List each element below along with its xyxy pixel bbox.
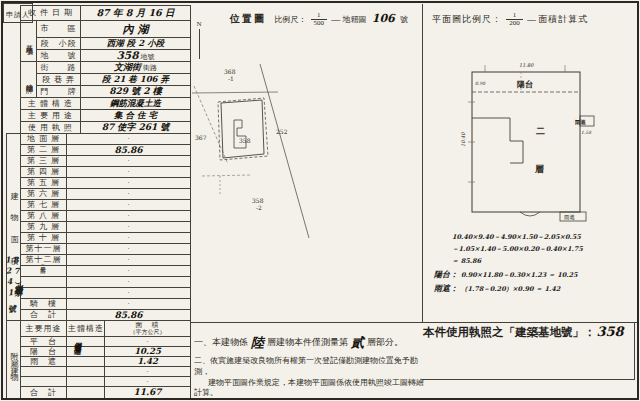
annex-row-value: 1.42 bbox=[105, 357, 191, 367]
note-1-hand-floors: 陸 bbox=[251, 335, 264, 350]
floor-row-value: 85.86 bbox=[67, 145, 191, 156]
lane-value: 段 21 巷 106 弄 bbox=[81, 74, 191, 86]
received-date-label: 收 件 日 期 bbox=[21, 6, 81, 21]
annex-total-label: 合 計 bbox=[21, 387, 67, 399]
road-line-right bbox=[260, 64, 309, 238]
note-1-text-b: 層建物本件僅測量第 bbox=[267, 337, 348, 347]
address-group-cell: 建物門牌 bbox=[21, 62, 37, 98]
floor-char-2: 層 bbox=[534, 164, 544, 174]
note-2: 二、依實施建築改良物所有權第一次登記僅勘測建物位置免予勘測， 建物平面圖作業規定… bbox=[194, 356, 424, 399]
calc-canopy-label: 雨遮： bbox=[434, 283, 458, 293]
notes-block: 一、本建物係陸層建物本件僅測量第貳層部分。 二、依實施建築改良物所有權第一次登記… bbox=[194, 334, 424, 401]
north-label: N bbox=[196, 20, 201, 28]
floor-char-1: 二 bbox=[536, 126, 545, 136]
calc-canopy-expr: （1.78－0.20）×0.90 ＝ 1.42 bbox=[461, 285, 560, 293]
annex-vertical-cell: 附屬建物 bbox=[7, 321, 21, 399]
usage-label: 主 要 用 途 bbox=[21, 110, 81, 122]
site-group-label: 基地地號 bbox=[25, 39, 32, 43]
bottom-bay-arc bbox=[520, 212, 540, 216]
plan-dash: — bbox=[527, 14, 536, 24]
license-site-note: 本件使用執照之「建築基地號」：358 bbox=[423, 324, 635, 340]
location-scale-label: 比例尺： bbox=[274, 15, 306, 24]
usage-value: 集 合 住 宅 bbox=[81, 110, 191, 122]
annex-table: 附屬建物 主要用途 主體構造 面 積 （平方公尺） 平 台· 陽 台10.25 … bbox=[6, 320, 191, 399]
annex-structure-vertical: 鋼筋混凝土造 bbox=[74, 337, 81, 385]
annex-row-label: 陽 台 bbox=[21, 347, 67, 357]
floor-row-label: 第 八 層 bbox=[21, 211, 67, 222]
door-label: 門 牌 bbox=[37, 86, 81, 98]
annex-col-area-line2: （平方公尺） bbox=[106, 329, 189, 335]
floor-row-value: · bbox=[67, 200, 191, 211]
lot-value: 358 bbox=[117, 50, 139, 62]
door-value: 829 號 2 樓 bbox=[81, 86, 191, 98]
area-calc-title: 面積計算式 bbox=[538, 14, 588, 24]
floor-area-table: 建物面積 地 面 層 · 第 二 層85.86 第 三 層· 第 四 層· 第 … bbox=[6, 133, 191, 321]
floor-row-value: · bbox=[67, 134, 191, 145]
annex-total-value: 11.67 bbox=[105, 387, 191, 399]
balcony-label: 陽台 bbox=[517, 79, 533, 89]
structure-label: 主 體 構 造 bbox=[21, 98, 81, 110]
floor-row-value: · bbox=[67, 288, 191, 299]
location-map-header: 位置圖 比例尺： 1 500 — 地籍圖 106 號 bbox=[230, 12, 408, 28]
floor-row-value: · bbox=[67, 277, 191, 288]
annex-row-label bbox=[21, 367, 67, 377]
annex-vertical-label: 附屬建物 bbox=[10, 344, 18, 374]
lot-label: 地 號 bbox=[37, 50, 81, 62]
license-note-number: 358 bbox=[597, 324, 624, 339]
parcel-368-label: 368 bbox=[224, 68, 236, 75]
floor-row-label: 第 三 層 bbox=[21, 156, 67, 167]
parcel-358-2-label: 358 bbox=[252, 197, 264, 204]
plan-outline bbox=[472, 72, 580, 212]
section-value: 西湖 段 2 小段 bbox=[81, 38, 191, 50]
annex-row-value: · bbox=[105, 337, 191, 347]
annex-structure-cell bbox=[67, 377, 105, 387]
cadastral-sheet-label: 地籍圖 bbox=[343, 15, 367, 24]
annex-structure-cell bbox=[67, 367, 105, 377]
plan-scale-label: 平面圖比例尺： bbox=[432, 14, 502, 24]
calc-line: 10.40×9.40－4.90×1.50－2.05×0.55 bbox=[434, 233, 634, 242]
site-map: 368 -1 367 252 358 358 -2 bbox=[190, 52, 422, 302]
annex-col-structure: 主體構造 bbox=[67, 321, 105, 337]
floor-row-label: 地 面 層 bbox=[21, 134, 67, 145]
location-scale-fraction: 1 500 bbox=[311, 12, 328, 28]
scanned-survey-form: 申請人 收 件 日 期 87 年 8 月 16 日 基地地號 市 區 內 湖 段… bbox=[0, 0, 640, 401]
plan-scale-denominator: 200 bbox=[506, 20, 523, 27]
floor-row-value: · bbox=[67, 156, 191, 167]
note-1-no: 一、 bbox=[194, 337, 212, 347]
floor-row-value: · bbox=[67, 266, 191, 277]
building-footprint-outline bbox=[221, 100, 264, 158]
floor-plan: 陽台 二 層 雨遮 雨遮 11.80 10.40 0.90 1.58 bbox=[425, 52, 638, 230]
street-label: 街 路 bbox=[37, 62, 81, 74]
floor-row-value: · bbox=[67, 222, 191, 233]
lot-cell: 358 地號 bbox=[81, 50, 191, 62]
annex-col-usage: 主要用途 bbox=[21, 321, 67, 337]
license-value: 87 使字 261 號 bbox=[81, 122, 191, 134]
parcel-358-2-sub: -2 bbox=[256, 204, 262, 211]
calc-balcony-expr: 0.90×11.80－0.30×1.23 ＝ 10.25 bbox=[461, 271, 578, 279]
calc-line: －1.05×1.40－5.00×0.20－0.40×1.75 bbox=[434, 245, 634, 254]
floor-total-label: 合 計 bbox=[21, 310, 67, 321]
annex-row-label bbox=[21, 377, 67, 387]
annex-row-label: 雨 遮 bbox=[21, 357, 67, 367]
annex-col-area-line1: 面 積 bbox=[106, 322, 189, 329]
dim-balcony-label: 0.90 bbox=[475, 81, 486, 86]
parcel-line-bottom bbox=[202, 175, 252, 176]
annex-row-label: 平 台 bbox=[21, 337, 67, 347]
annex-structure-cell bbox=[67, 347, 105, 357]
calc-line-balcony: 陽台：0.90×11.80－0.30×1.23 ＝ 10.25 bbox=[434, 269, 634, 280]
floor-row-value: · bbox=[67, 211, 191, 222]
identification-table: 收 件 日 期 87 年 8 月 16 日 基地地號 市 區 內 湖 段 小段 … bbox=[20, 5, 191, 134]
street-suffix: 街路 bbox=[143, 64, 157, 72]
plan-scale-fraction: 1 200 bbox=[506, 12, 523, 28]
note-2-no: 二、 bbox=[194, 356, 210, 365]
location-dash: — bbox=[331, 14, 340, 24]
parcel-boundary bbox=[218, 98, 268, 160]
road-line-top bbox=[192, 92, 278, 93]
received-date-value: 87 年 8 月 16 日 bbox=[81, 6, 191, 21]
floor-row-label: 第 九 層 bbox=[21, 222, 67, 233]
structure-value: 鋼筋混凝土造 bbox=[81, 98, 191, 110]
note-1-text-c: 層部分。 bbox=[367, 337, 403, 347]
floor-row-label: 第十一層 bbox=[21, 244, 67, 255]
annex-row-value: · bbox=[105, 367, 191, 377]
floor-row-label: 第 二 層 bbox=[21, 145, 67, 156]
floor-row-label: 第 四 層 bbox=[21, 167, 67, 178]
note-1: 一、本建物係陸層建物本件僅測量第貳層部分。 bbox=[194, 334, 424, 352]
annex-row-value: · bbox=[105, 377, 191, 387]
annex-structure-cell bbox=[67, 387, 105, 399]
parcel-252-label: 252 bbox=[276, 128, 288, 135]
floor-row-value: · bbox=[67, 299, 191, 310]
calc-line-canopy: 雨遮：（1.78－0.20）×0.90 ＝ 1.42 bbox=[434, 283, 634, 294]
site-group-cell: 基地地號 bbox=[21, 21, 37, 62]
street-value: 文湖街 bbox=[114, 62, 141, 72]
city-value: 內 湖 bbox=[81, 21, 191, 38]
street-cell: 文湖街 街路 bbox=[81, 62, 191, 74]
parcel-367-label: 367 bbox=[195, 134, 207, 141]
canopy-bottom-label: 雨遮 bbox=[564, 214, 576, 220]
canopy-right-label: 雨遮 bbox=[574, 119, 587, 126]
calc-balcony-label: 陽台： bbox=[434, 269, 458, 279]
plan-left-notch bbox=[472, 118, 523, 163]
note-1-hand-measured: 貳 bbox=[351, 335, 364, 350]
floor-row-value: · bbox=[67, 244, 191, 255]
floor-row-value: · bbox=[67, 189, 191, 200]
floor-row-label: 第 五 層 bbox=[21, 178, 67, 189]
location-scale-denominator: 500 bbox=[311, 20, 328, 27]
cadastral-sheet-suffix: 號 bbox=[400, 15, 408, 24]
lot-suffix: 地號 bbox=[140, 53, 154, 61]
note-2-line1: 依實施建築改良物所有權第一次登記僅勘測建物位置免予勘測， bbox=[194, 356, 418, 376]
annex-structure-cell bbox=[67, 357, 105, 367]
section-label: 段 小段 bbox=[37, 38, 81, 50]
address-group-label: 建物門牌 bbox=[25, 78, 32, 82]
note-2-line2: 建物平面圖作業規定，本建物平面圖係依使用執照竣工圖轉繪計算。 bbox=[194, 378, 424, 398]
floor-row-label: 第 六 層 bbox=[21, 189, 67, 200]
floor-row-value: · bbox=[67, 255, 191, 266]
city-label: 市 區 bbox=[37, 21, 81, 38]
floor-total-value: 85.86 bbox=[67, 310, 191, 321]
floor-row-label: 第 十 層 bbox=[21, 233, 67, 244]
cadastral-sheet-no: 106 bbox=[372, 12, 395, 25]
license-note-prefix: 本件使用執照之「建築基地號」： bbox=[423, 326, 596, 338]
annex-col-area: 面 積 （平方公尺） bbox=[105, 321, 191, 337]
floor-row-value: · bbox=[67, 233, 191, 244]
dim-canopy-label: 1.58 bbox=[581, 130, 592, 135]
floor-row-value: · bbox=[67, 167, 191, 178]
middle-right-divider bbox=[422, 4, 423, 322]
dim-top-label: 11.80 bbox=[519, 62, 534, 68]
floor-row-value: · bbox=[67, 178, 191, 189]
location-map-title: 位置圖 bbox=[230, 13, 266, 24]
note-1-text-a: 本建物係 bbox=[212, 337, 248, 347]
lane-label: 段 巷 弄 bbox=[37, 74, 81, 86]
dim-left-label: 10.40 bbox=[460, 132, 466, 147]
license-label: 使 用 執 照 bbox=[21, 122, 81, 134]
calc-line: ＝ 85.86 bbox=[434, 257, 634, 266]
parcel-358-label: 358 bbox=[239, 137, 251, 144]
floor-area-unit-label: （平方公尺） bbox=[40, 262, 46, 304]
floor-row-label: 第 七 層 bbox=[21, 200, 67, 211]
floor-plan-header: 平面圖比例尺： 1 200 — 面積計算式 bbox=[432, 12, 588, 28]
area-calculations: 10.40×9.40－4.90×1.50－2.05×0.55 －1.05×1.4… bbox=[434, 233, 634, 297]
annex-row-value: 10.25 bbox=[105, 347, 191, 357]
parcel-368-sub: -1 bbox=[228, 75, 234, 82]
